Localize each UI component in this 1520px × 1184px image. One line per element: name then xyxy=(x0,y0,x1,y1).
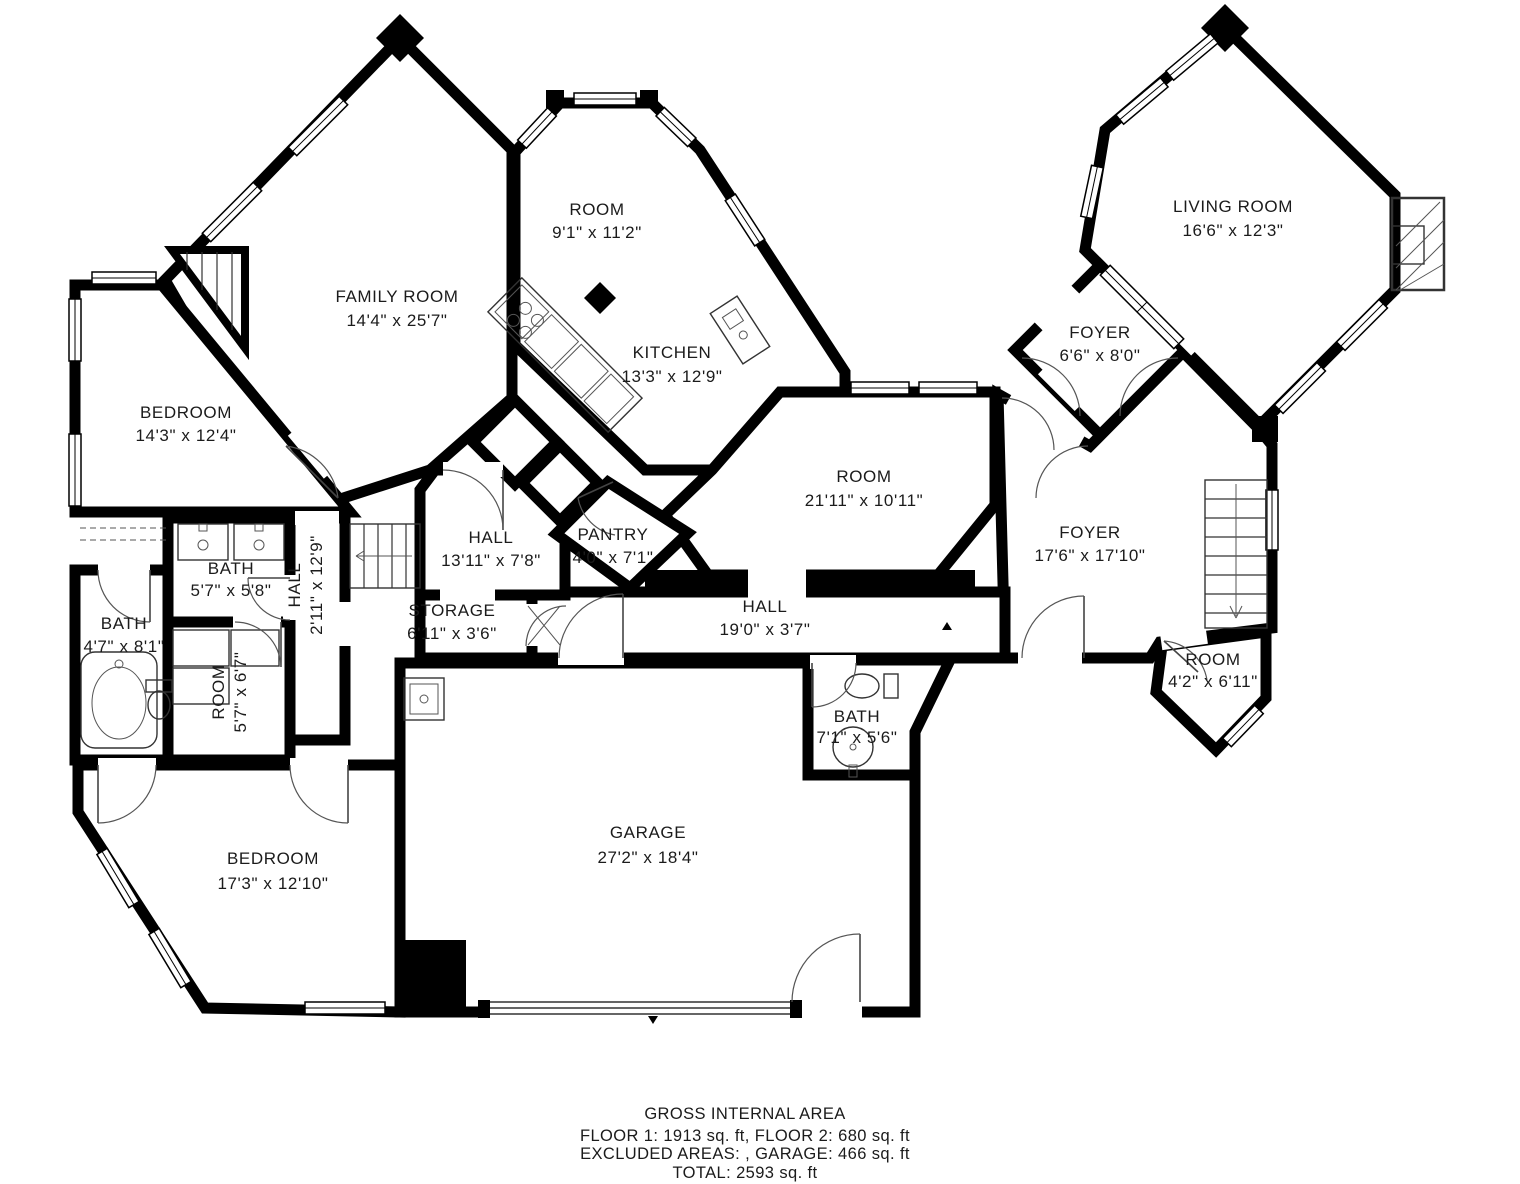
room-name: HALL xyxy=(285,563,304,608)
room-dims: 17'3" x 12'10" xyxy=(217,874,328,893)
room-dims: 5'7" x 5'8" xyxy=(191,581,272,600)
floor-plan-svg: ROOM 9'1" x 11'2" FAMILY ROOM 14'4" x 25… xyxy=(0,0,1520,1184)
room-dims: 27'2" x 18'4" xyxy=(597,848,698,867)
room-name: KITCHEN xyxy=(633,343,712,362)
room-dims: 6'6" x 8'0" xyxy=(1060,346,1141,365)
room-dims: 17'6" x 17'10" xyxy=(1034,546,1145,565)
room-name: ROOM xyxy=(836,467,891,486)
room-dims: 14'4" x 25'7" xyxy=(346,311,447,330)
room-dims: 21'11" x 10'11" xyxy=(805,491,924,510)
room-name: GARAGE xyxy=(610,823,686,842)
footer-area: GROSS INTERNAL AREA FLOOR 1: 1913 sq. ft… xyxy=(580,1105,910,1182)
room-name: BATH xyxy=(208,559,254,578)
room-dims: 4'0" x 7'1" xyxy=(573,548,654,567)
footer-line-3: EXCLUDED AREAS: , GARAGE: 466 sq. ft xyxy=(580,1145,910,1163)
room-dims: 16'6" x 12'3" xyxy=(1182,221,1283,240)
room-name: ROOM xyxy=(1185,650,1240,669)
footer-line-4: TOTAL: 2593 sq. ft xyxy=(672,1164,817,1182)
room-name: BATH xyxy=(101,614,147,633)
floor-plan: ROOM 9'1" x 11'2" FAMILY ROOM 14'4" x 25… xyxy=(0,0,1520,1184)
room-dims: 9'1" x 11'2" xyxy=(552,223,642,242)
footer-line-2: FLOOR 1: 1913 sq. ft, FLOOR 2: 680 sq. f… xyxy=(580,1127,910,1145)
room-name: LIVING ROOM xyxy=(1173,197,1293,216)
room-name: BATH xyxy=(834,707,880,726)
room-name: ROOM xyxy=(569,200,624,219)
room-dims: 19'0" x 3'7" xyxy=(720,620,811,639)
room-name: STORAGE xyxy=(408,601,495,620)
stairs-small xyxy=(350,524,420,588)
room-dims: 4'7" x 8'1" xyxy=(84,637,165,656)
room-name: HALL xyxy=(743,597,788,616)
footer-line-1: GROSS INTERNAL AREA xyxy=(644,1105,845,1123)
room-dims: 4'2" x 6'11" xyxy=(1168,672,1258,691)
room-dims: 5'7" x 6'7" xyxy=(231,652,250,733)
room-name: BEDROOM xyxy=(227,849,319,868)
room-dims: 7'1" x 5'6" xyxy=(817,728,898,747)
room-name: HALL xyxy=(469,528,514,547)
room-dims: 13'3" x 12'9" xyxy=(621,367,722,386)
room-dims: 2'11" x 12'9" xyxy=(307,535,326,635)
room-dims: 13'11" x 7'8" xyxy=(441,551,541,570)
room-name: ROOM xyxy=(209,664,228,719)
room-dims: 6'11" x 3'6" xyxy=(407,624,497,643)
room-name: FOYER xyxy=(1069,323,1131,342)
room-name: FAMILY ROOM xyxy=(335,287,458,306)
room-dims: 14'3" x 12'4" xyxy=(135,426,236,445)
room-name: BEDROOM xyxy=(140,403,232,422)
room-name: PANTRY xyxy=(578,525,649,544)
room-name: FOYER xyxy=(1059,523,1121,542)
